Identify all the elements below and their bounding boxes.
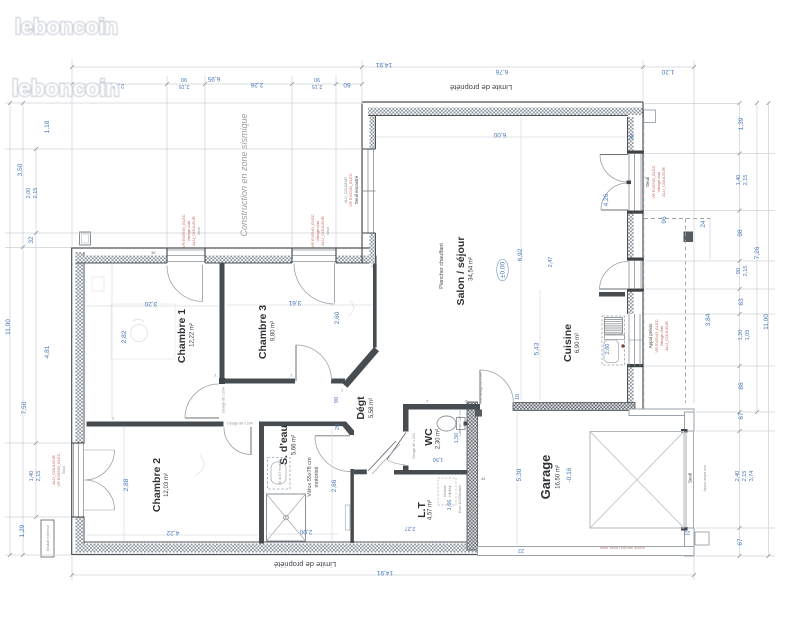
svg-text:7,26: 7,26 [754,246,761,259]
svg-text:VR EVENO_ELEC: VR EVENO_ELEC [56,453,61,486]
svg-text:2,26: 2,26 [250,81,263,88]
svg-text:40 id ST module: 40 id ST module [278,459,282,484]
svg-text:VR EVENO_ELEC: VR EVENO_ELEC [348,173,353,206]
svg-text:3,50: 3,50 [17,163,24,176]
svg-text:ALU_COULEUR: ALU_COULEUR [664,321,669,351]
svg-text:2,15: 2,15 [312,83,323,89]
svg-text:5,43: 5,43 [534,342,541,355]
svg-text:2,66: 2,66 [331,479,338,492]
svg-text:12,03 m²: 12,03 m² [164,473,170,497]
svg-text:±0.00: ±0.00 [500,262,507,279]
svg-text:Design 80 x 204: Design 80 x 204 [227,422,252,426]
svg-text:67: 67 [737,538,744,546]
svg-text:6,00: 6,00 [493,131,506,138]
svg-text:4,81: 4,81 [44,345,51,358]
svg-text:Seuil: Seuil [688,473,693,483]
svg-text:67: 67 [738,412,745,420]
svg-text:2,27: 2,27 [405,525,416,531]
svg-text:2,15: 2,15 [179,83,190,89]
svg-text:2,60: 2,60 [605,344,611,355]
svg-text:9,80 m²: 9,80 m² [271,321,277,341]
svg-text:2,00: 2,00 [26,188,32,199]
svg-text:Design 80 x 204: Design 80 x 204 [222,387,226,412]
svg-text:2,00: 2,00 [299,528,312,535]
svg-text:motorisé: motorisé [314,466,320,487]
svg-text:4,57 m²: 4,57 m² [428,500,434,520]
svg-text:6,95: 6,95 [207,75,220,82]
svg-text:HMMur: HMMur [448,484,452,496]
svg-text:Garage: Garage [538,455,553,500]
svg-text:2,82: 2,82 [121,330,128,343]
svg-text:22: 22 [684,529,690,535]
svg-text:WC: WC [423,428,435,446]
svg-text:leboncoin: leboncoin [12,75,119,101]
svg-text:Laterale 128 cm: Laterale 128 cm [458,410,462,435]
svg-text:1,39: 1,39 [738,117,745,130]
svg-text:L.T: L.T [416,502,428,518]
svg-text:Seuil: Seuil [645,177,650,187]
svg-text:3,20: 3,20 [144,300,157,307]
svg-text:63: 63 [738,298,745,306]
svg-text:6,76: 6,76 [495,68,508,75]
svg-text:1,20: 1,20 [738,330,744,341]
svg-text:Chambre 2: Chambre 2 [151,458,163,512]
svg-text:3,61: 3,61 [288,299,301,306]
svg-text:6,90 m²: 6,90 m² [575,333,581,353]
svg-text:Design 80 x 204: Design 80 x 204 [412,433,416,458]
svg-text:Chambre 3: Chambre 3 [257,305,269,359]
svg-text:ALU_COULEUR: ALU_COULEUR [661,167,666,197]
svg-text:5,66 m²: 5,66 m² [292,435,298,455]
svg-text:ALU_COULEUR: ALU_COULEUR [320,216,325,246]
svg-text:36: 36 [630,134,636,140]
svg-text:2,15: 2,15 [36,471,42,482]
svg-text:2,60: 2,60 [334,311,341,324]
svg-text:Module: Module [443,485,447,497]
svg-text:1,18: 1,18 [44,120,51,133]
svg-text:1,66: 1,66 [447,500,453,511]
svg-text:Dégt: Dégt [355,396,367,420]
svg-text:36: 36 [151,250,156,255]
svg-text:2,15: 2,15 [743,266,749,277]
svg-text:3,84: 3,84 [705,313,712,326]
svg-text:86: 86 [738,382,745,390]
svg-text:34,54 m²: 34,54 m² [469,257,475,281]
svg-text:44: 44 [481,476,486,481]
svg-text:32: 32 [28,236,35,244]
svg-text:Evac id ATModule: Evac id ATModule [458,485,462,513]
svg-text:90: 90 [314,76,320,82]
svg-text:Limite de propriété: Limite de propriété [450,83,512,92]
svg-text:2,88: 2,88 [123,478,130,491]
svg-text:5,58 m²: 5,58 m² [369,398,375,418]
svg-text:Chambre 1: Chambre 1 [176,309,188,363]
svg-text:S. d'eau: S. d'eau [278,425,290,465]
svg-text:Ref design 63 x 39: Ref design 63 x 39 [479,373,483,402]
svg-text:2,40: 2,40 [735,471,741,482]
svg-text:Vélux 55x78 cm: Vélux 55x78 cm [307,457,313,497]
svg-text:1,40: 1,40 [29,471,35,482]
svg-text:2,30 m²: 2,30 m² [436,429,442,449]
svg-text:6,92: 6,92 [517,248,524,261]
svg-text:leboncoin: leboncoin [15,14,118,39]
svg-text:11,00: 11,00 [5,319,12,335]
svg-text:1,20: 1,20 [661,68,674,75]
svg-text:ALU_COULEUR: ALU_COULEUR [191,216,196,246]
svg-text:3,74: 3,74 [749,471,755,482]
svg-text:1,50: 1,50 [433,456,444,462]
svg-text:11,00: 11,00 [763,314,770,330]
svg-text:96: 96 [661,216,668,224]
svg-text:22: 22 [518,547,524,553]
svg-text:90: 90 [181,76,187,82]
svg-text:Seuil: Seuil [62,466,66,474]
svg-text:90: 90 [334,397,340,403]
svg-text:Salon / séjour: Salon / séjour [455,237,467,306]
svg-text:24: 24 [700,220,707,228]
svg-text:dalle beton enrobe acces: dalle beton enrobe acces [600,545,645,550]
svg-text:Appui rampe mur: Appui rampe mur [703,464,707,492]
svg-text:-0.16: -0.16 [566,467,573,482]
svg-text:60: 60 [343,81,351,88]
svg-text:Cuisine: Cuisine [562,324,574,362]
svg-text:7,50: 7,50 [21,401,28,414]
svg-text:Seuil encastré: Seuil encastré [354,175,359,204]
svg-text:Seuil: Seuil [326,227,330,235]
svg-text:98: 98 [737,229,744,237]
svg-text:18: 18 [515,394,521,400]
svg-text:2,47: 2,47 [548,257,554,268]
svg-text:12,22 m²: 12,22 m² [190,323,196,347]
svg-text:Appui précis: Appui précis [648,323,653,349]
svg-text:14,91: 14,91 [375,61,392,68]
svg-text:Limite de propriété: Limite de propriété [274,560,336,569]
svg-text:16,50 m²: 16,50 m² [556,465,562,489]
svg-text:Module extérieur: Module extérieur [46,524,50,551]
svg-text:2,15: 2,15 [742,471,748,482]
svg-text:2,15: 2,15 [33,188,39,199]
svg-text:Seuil: Seuil [197,227,201,235]
svg-text:14,91: 14,91 [376,569,393,576]
svg-text:Construction en zone sismique: Construction en zone sismique [239,113,249,236]
svg-text:Plancher chauffant: Plancher chauffant [439,243,445,289]
svg-text:5,30: 5,30 [516,468,523,481]
svg-text:1,40: 1,40 [736,175,742,186]
svg-text:90: 90 [736,268,742,274]
svg-text:1,29: 1,29 [19,524,26,537]
svg-text:20: 20 [335,424,341,430]
svg-text:2,15: 2,15 [743,175,749,186]
svg-text:4,26: 4,26 [603,193,610,206]
svg-text:4,22: 4,22 [166,529,179,536]
svg-text:1,05: 1,05 [745,330,751,341]
